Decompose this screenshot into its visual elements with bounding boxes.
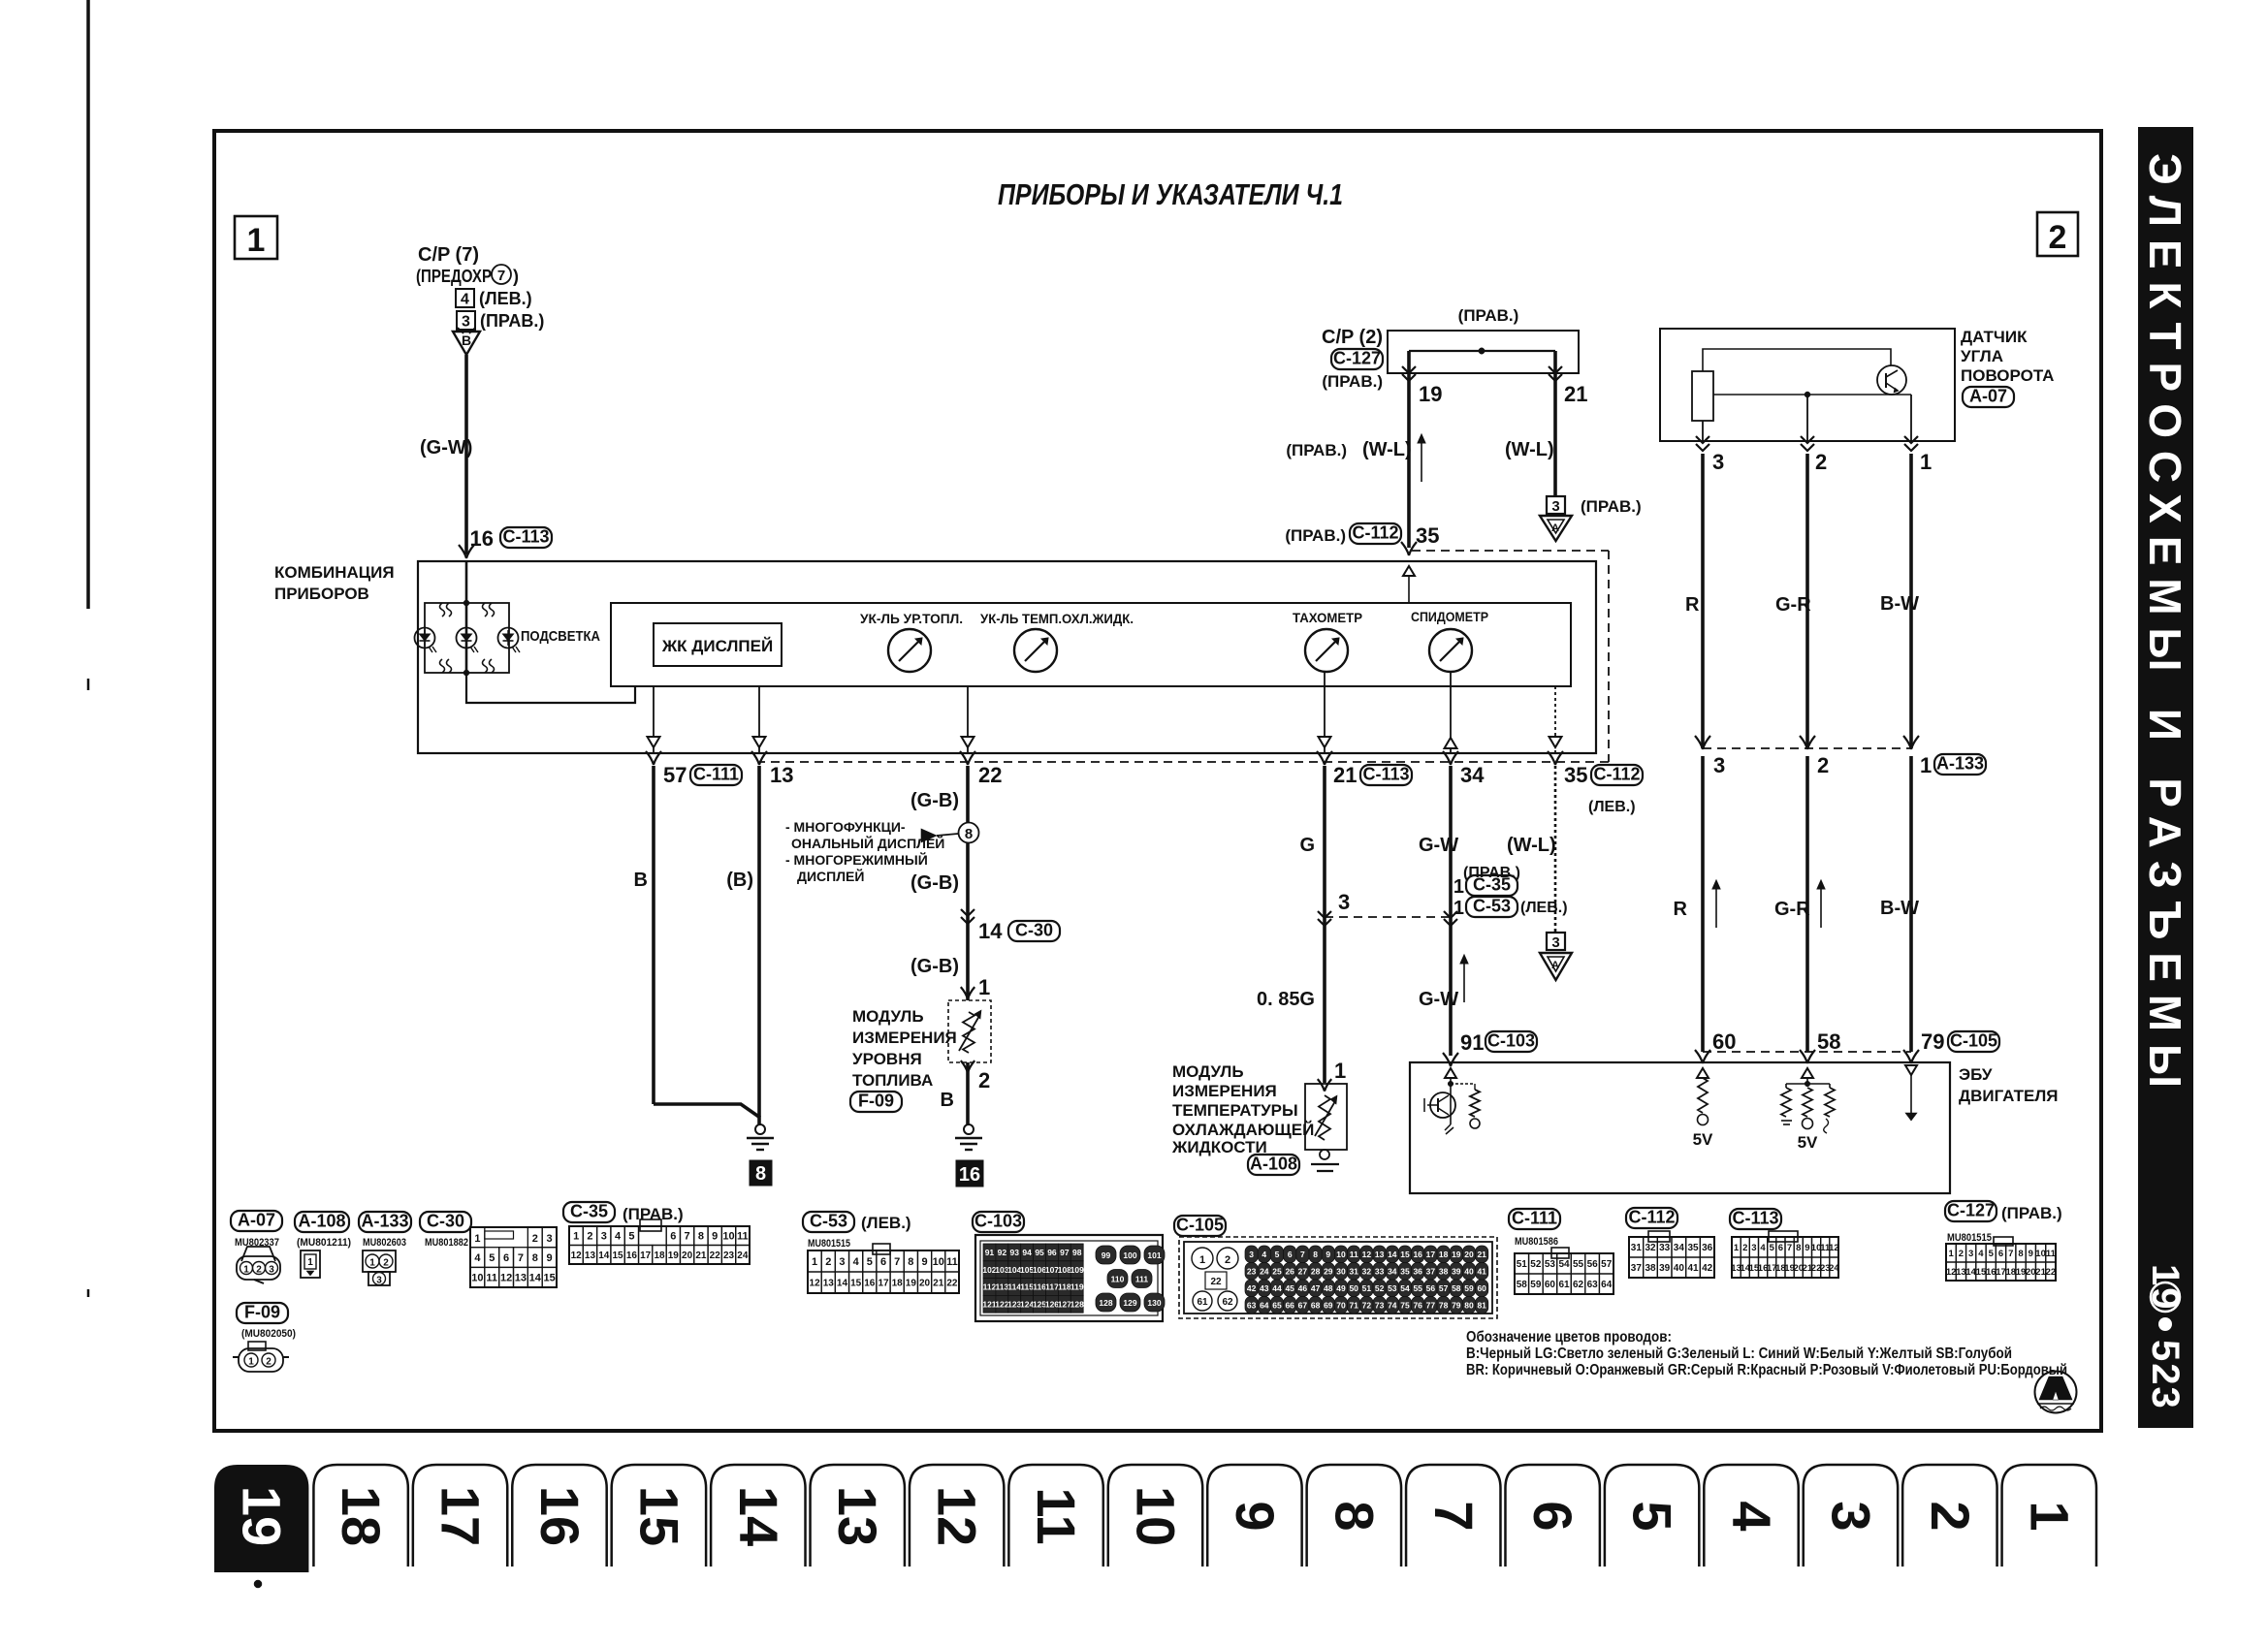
svg-text:УК-ЛЬ УР.ТОПЛ.: УК-ЛЬ УР.ТОПЛ. — [860, 611, 963, 626]
svg-text:42: 42 — [1247, 1283, 1257, 1293]
svg-text:15: 15 — [1400, 1250, 1410, 1259]
svg-text:129: 129 — [1123, 1298, 1136, 1308]
svg-text:C-105: C-105 — [1950, 1031, 1997, 1051]
svg-text:9: 9 — [1805, 1243, 1809, 1253]
svg-text:9: 9 — [1326, 1250, 1330, 1259]
svg-text:C-127: C-127 — [1947, 1201, 1995, 1220]
svg-text:(ПРАВ.): (ПРАВ.) — [623, 1205, 684, 1223]
svg-text:0. 85G: 0. 85G — [1257, 989, 1315, 1010]
svg-text:ТАХОМЕТР: ТАХОМЕТР — [1293, 610, 1362, 625]
svg-text:11: 11 — [2046, 1249, 2057, 1259]
svg-text:30: 30 — [1336, 1266, 1346, 1276]
svg-text:523: 523 — [2144, 1340, 2187, 1410]
svg-text:5: 5 — [1275, 1250, 1280, 1259]
svg-text:109: 109 — [1070, 1265, 1084, 1275]
svg-text:20: 20 — [919, 1279, 931, 1289]
svg-text:18: 18 — [1439, 1250, 1449, 1259]
svg-text:58: 58 — [1517, 1280, 1528, 1290]
svg-text:5V: 5V — [1798, 1133, 1818, 1152]
svg-text:ЭЛЕКТРОСХЕМЫ И РАЗЪЕМЫ: ЭЛЕКТРОСХЕМЫ И РАЗЪЕМЫ — [2140, 153, 2190, 1098]
svg-text:6: 6 — [1288, 1250, 1293, 1259]
svg-text:7: 7 — [497, 268, 505, 284]
svg-text:2: 2 — [978, 1068, 990, 1092]
svg-text:1: 1 — [2019, 1501, 2080, 1531]
svg-text:8: 8 — [1324, 1501, 1385, 1531]
svg-text:13: 13 — [770, 763, 793, 787]
svg-text:36: 36 — [1413, 1266, 1422, 1276]
svg-text:41: 41 — [1687, 1263, 1699, 1274]
svg-text:4: 4 — [1262, 1250, 1266, 1259]
svg-text:R: R — [1674, 899, 1688, 920]
svg-text:63: 63 — [1247, 1300, 1257, 1310]
svg-text:7: 7 — [685, 1231, 690, 1243]
svg-text:16: 16 — [864, 1279, 876, 1289]
svg-text:35: 35 — [1400, 1266, 1410, 1276]
svg-text:C-111: C-111 — [1512, 1209, 1557, 1228]
svg-text:21: 21 — [1333, 763, 1357, 787]
svg-text:9: 9 — [2028, 1249, 2033, 1259]
svg-text:11: 11 — [1026, 1487, 1087, 1544]
svg-text:27: 27 — [1298, 1266, 1308, 1276]
svg-text:(ЛЕВ.): (ЛЕВ.) — [1520, 900, 1568, 916]
svg-text:95: 95 — [1035, 1248, 1044, 1257]
svg-text:91: 91 — [985, 1248, 995, 1257]
svg-text:MU801515: MU801515 — [808, 1238, 850, 1250]
svg-text:ДИСПЛЕЙ: ДИСПЛЕЙ — [797, 868, 864, 884]
svg-text:10: 10 — [471, 1273, 483, 1284]
svg-text:C-30: C-30 — [1015, 921, 1053, 940]
svg-text:16: 16 — [959, 1164, 980, 1186]
svg-text:3: 3 — [1338, 890, 1350, 914]
svg-text:61: 61 — [1197, 1297, 1208, 1308]
svg-text:4: 4 — [1721, 1501, 1782, 1531]
svg-text:(W-L): (W-L) — [1362, 439, 1412, 460]
svg-text:58: 58 — [1817, 1029, 1840, 1054]
svg-text:15: 15 — [543, 1273, 555, 1284]
svg-text:92: 92 — [998, 1248, 1007, 1257]
svg-text:2: 2 — [1815, 450, 1827, 474]
svg-text:УГЛА: УГЛА — [1961, 347, 2003, 365]
svg-text:13: 13 — [823, 1279, 835, 1289]
svg-text:B: B — [462, 332, 471, 348]
svg-text:A-108: A-108 — [298, 1212, 345, 1231]
svg-text:C-113: C-113 — [1732, 1209, 1778, 1228]
svg-text:60: 60 — [1477, 1283, 1486, 1293]
svg-text:A-07: A-07 — [1969, 387, 2007, 406]
svg-text:53: 53 — [1388, 1283, 1397, 1293]
svg-text:BR: Коричневый O:Оранжевый GR:: BR: Коричневый O:Оранжевый GR:Серый R:Кр… — [1466, 1362, 2067, 1378]
svg-text:G: G — [1299, 835, 1315, 856]
svg-text:УРОВНЯ: УРОВНЯ — [852, 1050, 922, 1068]
svg-text:9: 9 — [547, 1252, 553, 1264]
svg-text:МОДУЛЬ: МОДУЛЬ — [1172, 1062, 1244, 1081]
svg-text:115: 115 — [1020, 1282, 1034, 1292]
svg-text:28: 28 — [1311, 1266, 1321, 1276]
svg-text:81: 81 — [1477, 1300, 1486, 1310]
svg-text:42: 42 — [1702, 1263, 1713, 1274]
svg-text:3: 3 — [1820, 1501, 1881, 1531]
svg-text:21: 21 — [695, 1250, 707, 1261]
svg-text:G-R: G-R — [1775, 594, 1811, 616]
svg-text:(G-W): (G-W) — [420, 437, 472, 459]
svg-text:C-112: C-112 — [1593, 765, 1640, 784]
svg-text:MU801882: MU801882 — [425, 1237, 468, 1249]
svg-text:18: 18 — [892, 1279, 904, 1289]
svg-text:14: 14 — [728, 1486, 789, 1546]
svg-text:B-W: B-W — [1880, 593, 1919, 615]
svg-text:62: 62 — [1573, 1280, 1584, 1290]
svg-text:(B): (B) — [726, 870, 753, 891]
svg-text:2: 2 — [1225, 1254, 1230, 1266]
svg-text:19: 19 — [2144, 1264, 2187, 1312]
svg-text:14: 14 — [1388, 1250, 1397, 1259]
svg-text:2: 2 — [532, 1233, 538, 1245]
svg-text:59: 59 — [1530, 1280, 1542, 1290]
svg-text:4: 4 — [615, 1231, 622, 1243]
svg-text:КОМБИНАЦИЯ: КОМБИНАЦИЯ — [274, 563, 395, 582]
svg-text:2: 2 — [1742, 1243, 1747, 1253]
svg-text:1: 1 — [978, 975, 990, 999]
svg-text:ЖК ДИСЛПЕЙ: ЖК ДИСЛПЕЙ — [661, 637, 773, 655]
svg-text:C-53: C-53 — [810, 1212, 847, 1231]
svg-text:52: 52 — [1530, 1259, 1542, 1270]
svg-text:64: 64 — [1260, 1300, 1269, 1310]
svg-text:94: 94 — [1022, 1248, 1032, 1257]
svg-text:6: 6 — [503, 1252, 509, 1264]
svg-text:2: 2 — [1920, 1501, 1981, 1531]
svg-text:A-133: A-133 — [1936, 754, 1984, 774]
svg-text:128: 128 — [1099, 1298, 1112, 1308]
svg-text:74: 74 — [1388, 1300, 1397, 1310]
svg-text:A: A — [1551, 522, 1559, 534]
svg-text:7: 7 — [1300, 1250, 1305, 1259]
svg-text:МОДУЛЬ: МОДУЛЬ — [852, 1007, 924, 1026]
svg-text:12: 12 — [1946, 1267, 1957, 1278]
svg-text:116: 116 — [1033, 1282, 1046, 1292]
svg-text:C-111: C-111 — [693, 765, 739, 784]
svg-text:C-30: C-30 — [427, 1212, 464, 1231]
svg-text:98: 98 — [1072, 1248, 1082, 1257]
svg-text:22: 22 — [2046, 1267, 2057, 1278]
svg-text:10: 10 — [1126, 1486, 1187, 1546]
svg-text:12: 12 — [810, 1279, 821, 1289]
svg-text:ТОПЛИВА: ТОПЛИВА — [852, 1071, 933, 1090]
svg-text:63: 63 — [1587, 1280, 1599, 1290]
svg-text:ПОДСВЕТКА: ПОДСВЕТКА — [521, 628, 600, 645]
svg-text:F-09: F-09 — [858, 1092, 894, 1111]
svg-text:22: 22 — [1210, 1277, 1222, 1287]
svg-text:3: 3 — [1712, 450, 1724, 474]
svg-text:33: 33 — [1375, 1266, 1385, 1276]
svg-text:18: 18 — [331, 1486, 392, 1546]
svg-text:114: 114 — [1007, 1282, 1021, 1292]
svg-text:10: 10 — [2035, 1249, 2046, 1259]
svg-text:13: 13 — [1956, 1267, 1966, 1278]
svg-text:22: 22 — [946, 1279, 958, 1289]
svg-text:5: 5 — [867, 1256, 873, 1268]
svg-text:СПИДОМЕТР: СПИДОМЕТР — [1411, 609, 1488, 624]
svg-text:(ПРАВ.): (ПРАВ.) — [1581, 497, 1642, 516]
svg-text:101: 101 — [1147, 1250, 1161, 1260]
svg-text:11: 11 — [946, 1256, 958, 1268]
svg-text:35: 35 — [1687, 1243, 1699, 1253]
svg-text:1: 1 — [248, 1357, 254, 1368]
svg-text:65: 65 — [1272, 1300, 1282, 1310]
svg-text:6: 6 — [1998, 1249, 2003, 1259]
svg-text:19: 19 — [232, 1486, 293, 1546]
svg-text:3: 3 — [601, 1231, 607, 1243]
svg-text:35: 35 — [1416, 523, 1439, 548]
svg-text:91: 91 — [1460, 1030, 1484, 1055]
svg-text:6: 6 — [670, 1231, 676, 1243]
svg-text:64: 64 — [1601, 1280, 1613, 1290]
svg-text:10: 10 — [722, 1231, 734, 1243]
svg-text:61: 61 — [1558, 1280, 1570, 1290]
svg-text:C-105: C-105 — [1176, 1216, 1224, 1235]
svg-text:(W-L): (W-L) — [1507, 835, 1556, 856]
svg-text:ТЕМПЕРАТУРЫ: ТЕМПЕРАТУРЫ — [1172, 1101, 1298, 1120]
svg-text:33: 33 — [1659, 1243, 1671, 1253]
svg-text:16: 16 — [626, 1250, 638, 1261]
svg-text:36: 36 — [1702, 1243, 1713, 1253]
svg-text:14: 14 — [978, 919, 1003, 943]
svg-text:55: 55 — [1573, 1259, 1584, 1270]
svg-text:(MU801211): (MU801211) — [297, 1237, 351, 1249]
svg-text:34: 34 — [1388, 1266, 1397, 1276]
svg-text:50: 50 — [1349, 1283, 1358, 1293]
svg-text:1: 1 — [1920, 753, 1932, 777]
svg-text:57: 57 — [663, 763, 687, 787]
svg-text:96: 96 — [1047, 1248, 1057, 1257]
svg-text:(W-L): (W-L) — [1505, 439, 1554, 460]
svg-text:17: 17 — [431, 1486, 492, 1546]
svg-text:22: 22 — [978, 763, 1002, 787]
svg-text:8: 8 — [1796, 1243, 1801, 1253]
svg-text:19: 19 — [1419, 382, 1442, 406]
svg-text:18: 18 — [654, 1250, 665, 1261]
svg-text:34: 34 — [1674, 1243, 1685, 1253]
svg-text:128: 128 — [1070, 1300, 1084, 1310]
svg-text:): ) — [513, 267, 519, 286]
svg-text:5: 5 — [1622, 1501, 1683, 1531]
svg-text:37: 37 — [1426, 1266, 1436, 1276]
svg-text:23: 23 — [1247, 1266, 1257, 1276]
svg-text:12: 12 — [927, 1486, 988, 1546]
svg-text:3: 3 — [462, 314, 470, 331]
svg-text:97: 97 — [1060, 1248, 1070, 1257]
svg-text:16: 16 — [1986, 1267, 1996, 1278]
svg-text:75: 75 — [1400, 1300, 1410, 1310]
svg-text:41: 41 — [1477, 1266, 1486, 1276]
svg-text:62: 62 — [1222, 1297, 1233, 1308]
svg-text:C-127: C-127 — [1333, 349, 1381, 368]
svg-text:111: 111 — [1135, 1275, 1149, 1284]
svg-text:3: 3 — [1713, 753, 1725, 777]
svg-text:5: 5 — [1770, 1243, 1775, 1253]
svg-text:29: 29 — [1324, 1266, 1333, 1276]
svg-text:10: 10 — [1336, 1250, 1346, 1259]
svg-text:69: 69 — [1324, 1300, 1333, 1310]
svg-text:3: 3 — [376, 1276, 382, 1286]
svg-text:ИЗМЕРЕНИЯ: ИЗМЕРЕНИЯ — [1172, 1082, 1277, 1100]
svg-text:3: 3 — [1751, 1243, 1756, 1253]
svg-text:(G-B): (G-B) — [910, 956, 959, 977]
svg-text:3: 3 — [1968, 1249, 1973, 1259]
svg-text:ПРИБОРОВ: ПРИБОРОВ — [274, 585, 369, 603]
svg-text:C/P (7): C/P (7) — [418, 244, 479, 266]
svg-text:71: 71 — [1349, 1300, 1358, 1310]
svg-text:C-35: C-35 — [1473, 875, 1511, 895]
svg-text:25: 25 — [1272, 1266, 1282, 1276]
svg-text:24: 24 — [1260, 1266, 1269, 1276]
svg-text:(ЛЕВ.): (ЛЕВ.) — [1588, 799, 1636, 815]
svg-text:6: 6 — [1522, 1501, 1583, 1531]
svg-text:12: 12 — [571, 1250, 583, 1261]
svg-text:118: 118 — [1058, 1282, 1071, 1292]
svg-text:10: 10 — [933, 1256, 944, 1268]
svg-text:18: 18 — [2005, 1267, 2016, 1278]
svg-text:35: 35 — [1564, 763, 1587, 787]
svg-text:7: 7 — [894, 1256, 900, 1268]
svg-text:17: 17 — [1996, 1267, 2006, 1278]
svg-text:2: 2 — [1817, 753, 1829, 777]
svg-text:R: R — [1685, 594, 1700, 616]
svg-text:20: 20 — [1464, 1250, 1474, 1259]
svg-text:21: 21 — [1477, 1250, 1486, 1259]
svg-text:17: 17 — [878, 1279, 889, 1289]
svg-text:56: 56 — [1587, 1259, 1599, 1270]
svg-text:4: 4 — [1760, 1243, 1766, 1253]
svg-text:76: 76 — [1413, 1300, 1422, 1310]
svg-text:3: 3 — [547, 1233, 553, 1245]
svg-text:57: 57 — [1601, 1259, 1613, 1270]
svg-text:59: 59 — [1464, 1283, 1474, 1293]
svg-text:A-108: A-108 — [1250, 1155, 1297, 1174]
svg-text:23: 23 — [723, 1250, 735, 1261]
svg-text:51: 51 — [1517, 1259, 1528, 1270]
svg-text:21: 21 — [933, 1279, 944, 1289]
svg-text:(ПРАВ.): (ПРАВ.) — [1286, 441, 1347, 459]
svg-text:1: 1 — [812, 1256, 817, 1268]
svg-text:13: 13 — [1375, 1250, 1385, 1259]
svg-text:1: 1 — [307, 1257, 313, 1268]
svg-text:117: 117 — [1045, 1282, 1059, 1292]
svg-text:112: 112 — [983, 1282, 997, 1292]
svg-text:MU801586: MU801586 — [1515, 1236, 1558, 1248]
svg-text:6: 6 — [880, 1256, 886, 1268]
svg-text:(ПРАВ.): (ПРАВ.) — [1322, 372, 1383, 391]
svg-text:73: 73 — [1375, 1300, 1385, 1310]
svg-text:39: 39 — [1452, 1266, 1461, 1276]
svg-text:(ПРАВ.): (ПРАВ.) — [2001, 1204, 2062, 1222]
svg-text:12: 12 — [500, 1273, 512, 1284]
svg-text:2: 2 — [587, 1231, 592, 1243]
svg-text:(ЛЕВ.): (ЛЕВ.) — [479, 289, 532, 308]
svg-text:93: 93 — [1010, 1248, 1020, 1257]
svg-text:45: 45 — [1285, 1283, 1294, 1293]
svg-text:40: 40 — [1674, 1263, 1685, 1274]
svg-text:C-112: C-112 — [1628, 1208, 1675, 1227]
svg-text:4: 4 — [461, 292, 469, 308]
svg-text:60: 60 — [1712, 1029, 1736, 1054]
svg-text:119: 119 — [1070, 1282, 1084, 1292]
svg-text:24: 24 — [737, 1250, 749, 1261]
svg-text:110: 110 — [1111, 1275, 1125, 1284]
svg-text:38: 38 — [1439, 1266, 1449, 1276]
svg-text:C-113: C-113 — [1362, 765, 1409, 784]
svg-text:130: 130 — [1147, 1298, 1161, 1308]
svg-text:A: A — [1551, 960, 1559, 971]
svg-text:C-113: C-113 — [502, 527, 549, 547]
svg-text:C-103: C-103 — [974, 1212, 1022, 1231]
svg-text:1: 1 — [1334, 1059, 1346, 1083]
svg-text:14: 14 — [837, 1279, 848, 1289]
svg-text:14: 14 — [529, 1273, 542, 1284]
svg-text:9: 9 — [712, 1231, 718, 1243]
svg-text:7: 7 — [1423, 1501, 1485, 1531]
svg-text:113: 113 — [995, 1282, 1008, 1292]
svg-text:34: 34 — [1460, 763, 1485, 787]
svg-text:19: 19 — [668, 1250, 680, 1261]
svg-text:(G-B): (G-B) — [910, 790, 959, 811]
svg-text:32: 32 — [1645, 1243, 1656, 1253]
svg-text:8: 8 — [755, 1163, 766, 1185]
svg-text:20: 20 — [682, 1250, 693, 1261]
svg-text:54: 54 — [1558, 1259, 1570, 1270]
svg-text:2: 2 — [825, 1256, 831, 1268]
svg-text:Обозначение цветов проводов:: Обозначение цветов проводов: — [1466, 1329, 1672, 1345]
svg-text:1: 1 — [1948, 1249, 1954, 1259]
svg-text:- МНОГОРЕЖИМНЫЙ: - МНОГОРЕЖИМНЫЙ — [785, 851, 928, 868]
svg-text:57: 57 — [1439, 1283, 1449, 1293]
svg-text:11: 11 — [737, 1231, 749, 1243]
svg-text:44: 44 — [1272, 1283, 1282, 1293]
svg-text:F-09: F-09 — [244, 1303, 280, 1322]
svg-text:79: 79 — [1452, 1300, 1461, 1310]
svg-text:54: 54 — [1400, 1283, 1410, 1293]
svg-text:52: 52 — [1375, 1283, 1385, 1293]
svg-text:67: 67 — [1298, 1300, 1308, 1310]
svg-text:(MU802050): (MU802050) — [241, 1328, 296, 1340]
svg-text:4: 4 — [474, 1252, 481, 1264]
svg-text:2: 2 — [1959, 1249, 1964, 1259]
svg-text:MU802603: MU802603 — [363, 1237, 406, 1249]
svg-text:7: 7 — [518, 1252, 524, 1264]
svg-text:51: 51 — [1362, 1283, 1372, 1293]
svg-text:19: 19 — [1452, 1250, 1461, 1259]
svg-text:24: 24 — [1829, 1263, 1839, 1274]
svg-text:15: 15 — [850, 1279, 862, 1289]
svg-text:8: 8 — [532, 1252, 538, 1264]
svg-text:15: 15 — [628, 1486, 689, 1546]
svg-text:40: 40 — [1464, 1266, 1474, 1276]
svg-text:11: 11 — [486, 1273, 497, 1284]
svg-text:26: 26 — [1285, 1266, 1294, 1276]
svg-text:2: 2 — [383, 1258, 389, 1269]
svg-text:78: 78 — [1439, 1300, 1449, 1310]
svg-text:56: 56 — [1426, 1283, 1436, 1293]
svg-text:3: 3 — [269, 1265, 274, 1276]
svg-text:14: 14 — [598, 1250, 610, 1261]
svg-text:G-R: G-R — [1774, 899, 1810, 920]
svg-text:43: 43 — [1260, 1283, 1269, 1293]
svg-text:G-W: G-W — [1419, 989, 1458, 1010]
svg-text:8: 8 — [908, 1256, 913, 1268]
svg-text:C-103: C-103 — [1487, 1031, 1535, 1051]
svg-text:УК-ЛЬ ТЕМП.ОХЛ.ЖИДК.: УК-ЛЬ ТЕМП.ОХЛ.ЖИДК. — [980, 611, 1134, 626]
svg-text:ДВИГАТЕЛЯ: ДВИГАТЕЛЯ — [1959, 1087, 2058, 1105]
svg-text:3: 3 — [839, 1256, 845, 1268]
